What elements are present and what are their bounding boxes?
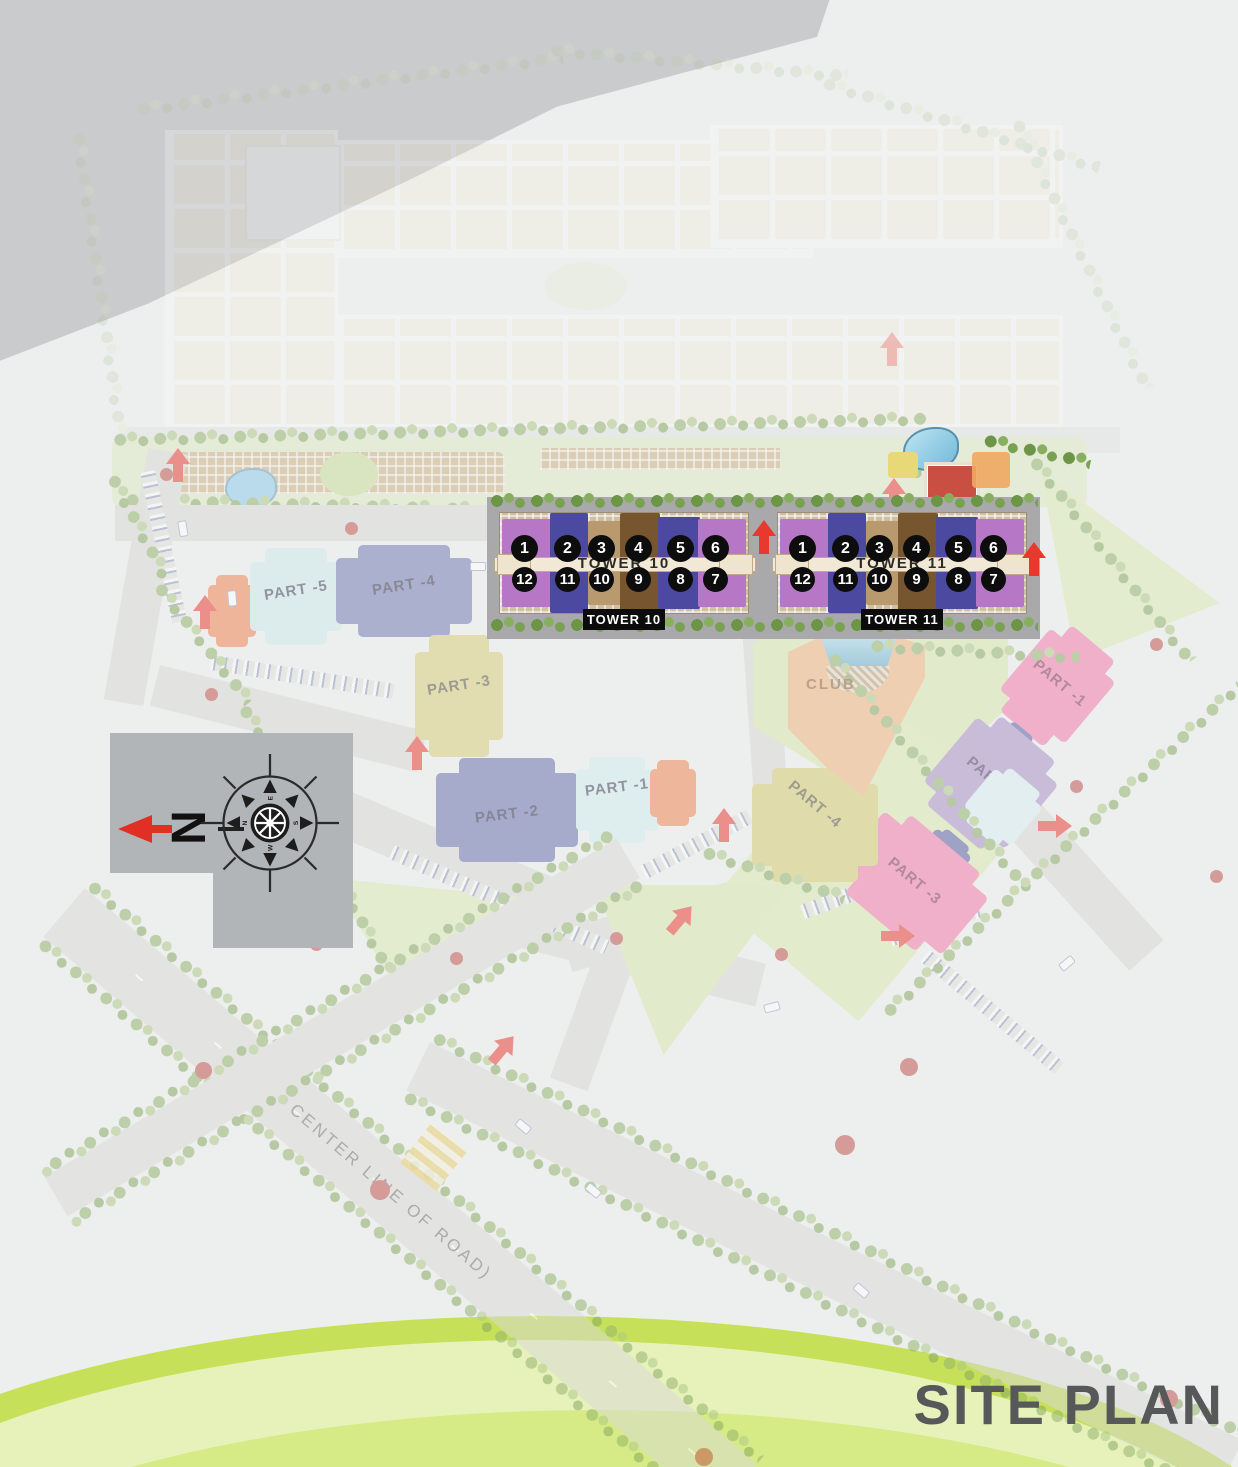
- svg-text:N: N: [242, 820, 249, 825]
- garden-path: [540, 448, 780, 470]
- tree-line: [489, 491, 1038, 511]
- unit-circle[interactable]: 12: [790, 567, 815, 592]
- building-part1[interactable]: PART -1: [576, 757, 658, 843]
- svg-text:S: S: [293, 820, 300, 825]
- plot-green-oval: [545, 262, 627, 310]
- unit-circle[interactable]: 6: [980, 535, 1007, 562]
- unit-circle[interactable]: 7: [981, 567, 1006, 592]
- direction-arrow: [880, 332, 904, 368]
- north-arrow-icon: [118, 815, 152, 843]
- tree-line: [489, 615, 1038, 635]
- unit-circle[interactable]: 11: [555, 567, 580, 592]
- unit-circle[interactable]: 9: [626, 567, 651, 592]
- unit-circle[interactable]: 7: [703, 567, 728, 592]
- lawn-circle: [320, 452, 378, 496]
- direction-arrow: [752, 520, 776, 556]
- building-part2[interactable]: PART -2: [436, 758, 578, 862]
- plot-building: [245, 145, 341, 241]
- tower-10-tag: TOWER 10: [583, 609, 665, 630]
- sand-court: [888, 452, 918, 478]
- tower-11-tag: TOWER 11: [861, 609, 943, 630]
- compass-rose: N E S W: [195, 748, 345, 898]
- faded-top-plots: [80, 15, 1085, 445]
- tree-line: [548, 40, 849, 86]
- club-label: CLUB: [806, 676, 856, 693]
- unit-circle[interactable]: 9: [904, 567, 929, 592]
- tower-10[interactable]: TOWER 10 1 2 3 4 5 6 12 11 10 9 8 7: [500, 513, 748, 613]
- unit-circle[interactable]: 3: [866, 535, 893, 562]
- tower-11[interactable]: TOWER 11 1 2 3 4 5 6 12 11 10 9 8 7: [778, 513, 1026, 613]
- building-part4[interactable]: PART -4: [336, 545, 472, 637]
- unit-circle[interactable]: 10: [589, 567, 614, 592]
- unit-circle[interactable]: 3: [588, 535, 615, 562]
- building-part5[interactable]: PART -5: [250, 548, 342, 645]
- part-label: PART -4: [336, 566, 473, 604]
- unit-circle[interactable]: 5: [667, 535, 694, 562]
- direction-arrow: [1022, 542, 1046, 578]
- unit-circle[interactable]: 10: [867, 567, 892, 592]
- towers-band: TOWER 10 1 2 3 4 5 6 12 11 10 9 8 7 TOWE…: [487, 497, 1040, 639]
- part-label: PART -1: [575, 774, 658, 801]
- unit-circle[interactable]: 2: [554, 535, 581, 562]
- unit-circle[interactable]: 8: [668, 567, 693, 592]
- unit-circle[interactable]: 1: [789, 535, 816, 562]
- part-label: PART -3: [414, 670, 504, 701]
- svg-text:W: W: [267, 844, 274, 851]
- unit-circle[interactable]: 12: [512, 567, 537, 592]
- unit-circle[interactable]: 1: [511, 535, 538, 562]
- page-title: SITE PLAN: [914, 1372, 1224, 1437]
- unit-circle[interactable]: 6: [702, 535, 729, 562]
- unit-circle[interactable]: 4: [903, 535, 930, 562]
- unit-circle[interactable]: 8: [946, 567, 971, 592]
- site-plan-canvas: PART -5 PART -4 PART -3 PART -2 PART -1 …: [0, 0, 1238, 1467]
- tree-line: [68, 130, 134, 460]
- unit-circle[interactable]: 5: [945, 535, 972, 562]
- unit-circle[interactable]: 11: [833, 567, 858, 592]
- svg-text:E: E: [267, 796, 274, 801]
- building-orange: [650, 760, 696, 826]
- tree-line: [135, 48, 564, 120]
- part-label: PART -2: [435, 797, 578, 831]
- orange-court: [972, 452, 1010, 488]
- unit-circle[interactable]: 2: [832, 535, 859, 562]
- part-label: PART -5: [249, 575, 343, 606]
- unit-circle[interactable]: 4: [625, 535, 652, 562]
